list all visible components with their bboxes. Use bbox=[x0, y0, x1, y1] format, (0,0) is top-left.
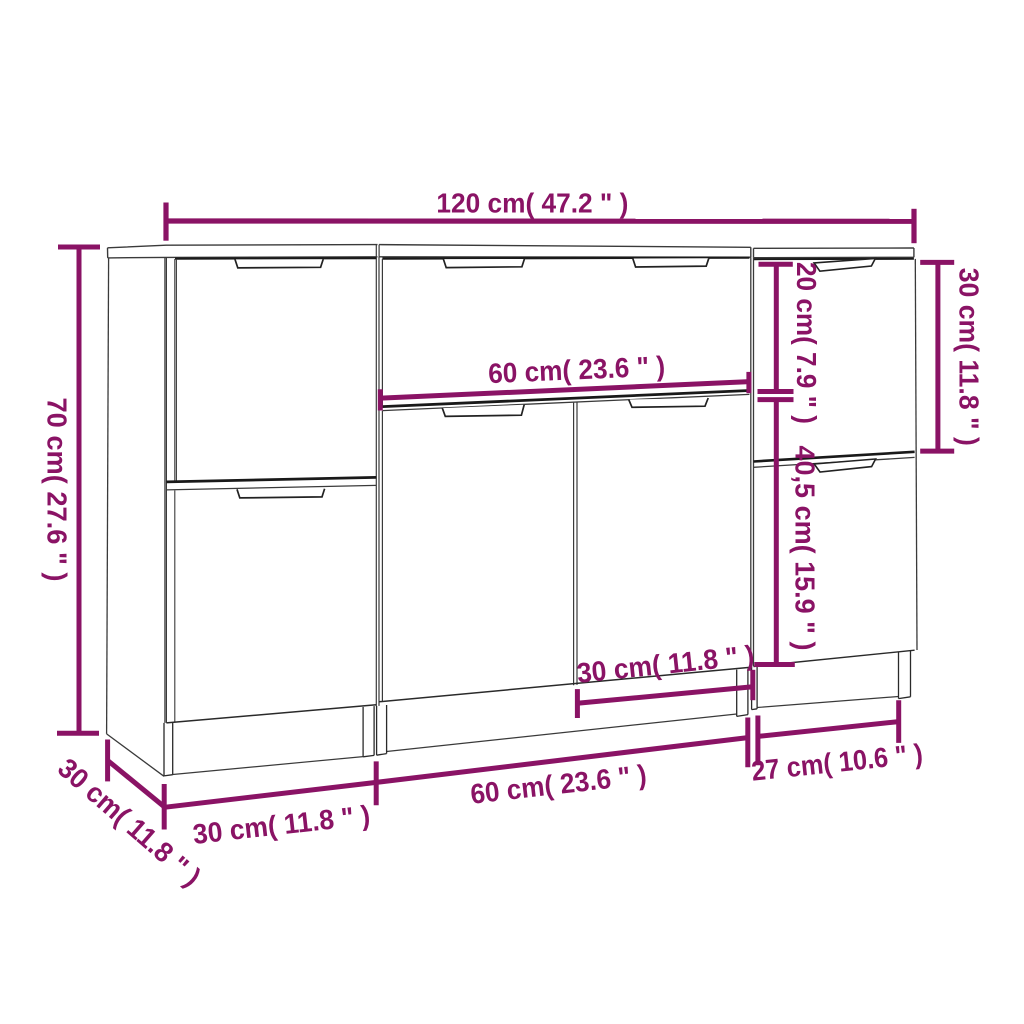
svg-text:30 cm( 11.8 " ): 30 cm( 11.8 " ) bbox=[954, 268, 985, 446]
svg-text:20 cm( 7.9 " ): 20 cm( 7.9 " ) bbox=[791, 262, 822, 424]
svg-text:70 cm( 27.6 " ): 70 cm( 27.6 " ) bbox=[42, 398, 73, 582]
svg-text:120 cm( 47.2 " ): 120 cm( 47.2 " ) bbox=[436, 187, 628, 218]
svg-text:40,5 cm( 15.9 " ): 40,5 cm( 15.9 " ) bbox=[790, 446, 821, 651]
